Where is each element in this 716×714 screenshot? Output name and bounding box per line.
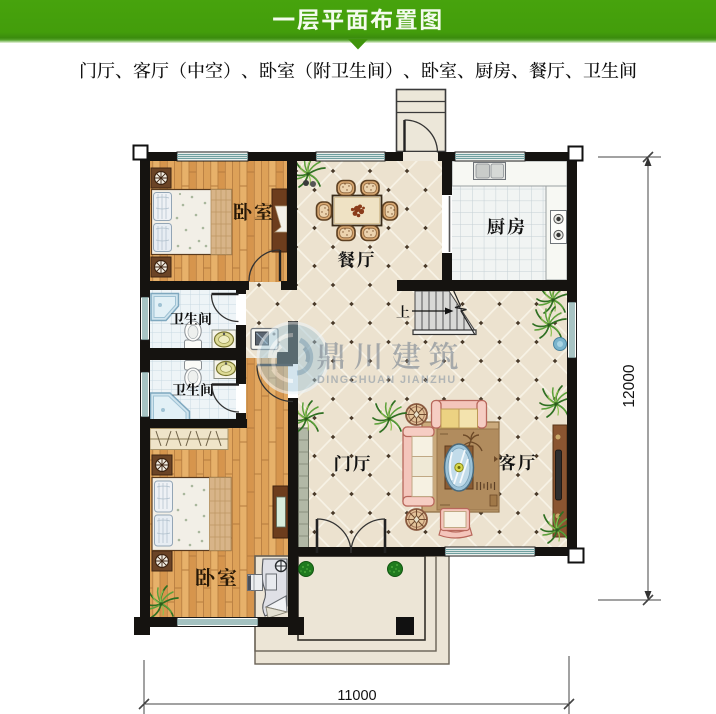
svg-text:11000: 11000: [337, 688, 376, 704]
svg-text:DINGCHUAN JIANZHU: DINGCHUAN JIANZHU: [317, 374, 457, 386]
svg-text:12000: 12000: [621, 364, 638, 407]
